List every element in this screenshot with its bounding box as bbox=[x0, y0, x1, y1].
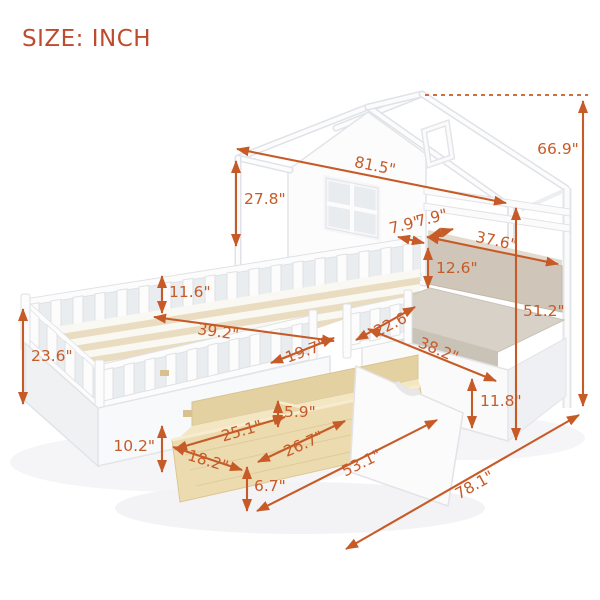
size-unit-heading: SIZE: INCH bbox=[22, 26, 151, 52]
dim-wall-height: 27.8" bbox=[236, 161, 286, 246]
svg-text:6.7": 6.7" bbox=[254, 477, 286, 495]
svg-text:51.2": 51.2" bbox=[523, 302, 565, 320]
chimney-frame bbox=[424, 123, 452, 165]
svg-text:66.9": 66.9" bbox=[537, 140, 579, 158]
bed-illustration: 81.5" 66.9" 27.8" 7.9" 7.9" 37.6" bbox=[0, 0, 600, 600]
svg-text:5.9": 5.9" bbox=[284, 403, 316, 421]
product-dimension-diagram: SIZE: INCH bbox=[0, 0, 600, 600]
svg-text:78.1": 78.1" bbox=[452, 467, 497, 503]
svg-text:23.6": 23.6" bbox=[31, 347, 73, 365]
svg-text:12.6": 12.6" bbox=[436, 259, 478, 277]
window bbox=[326, 178, 378, 238]
svg-text:11.6": 11.6" bbox=[169, 283, 211, 301]
svg-text:10.2": 10.2" bbox=[113, 437, 155, 455]
svg-text:27.8": 27.8" bbox=[244, 190, 286, 208]
svg-text:11.8": 11.8" bbox=[480, 392, 522, 410]
